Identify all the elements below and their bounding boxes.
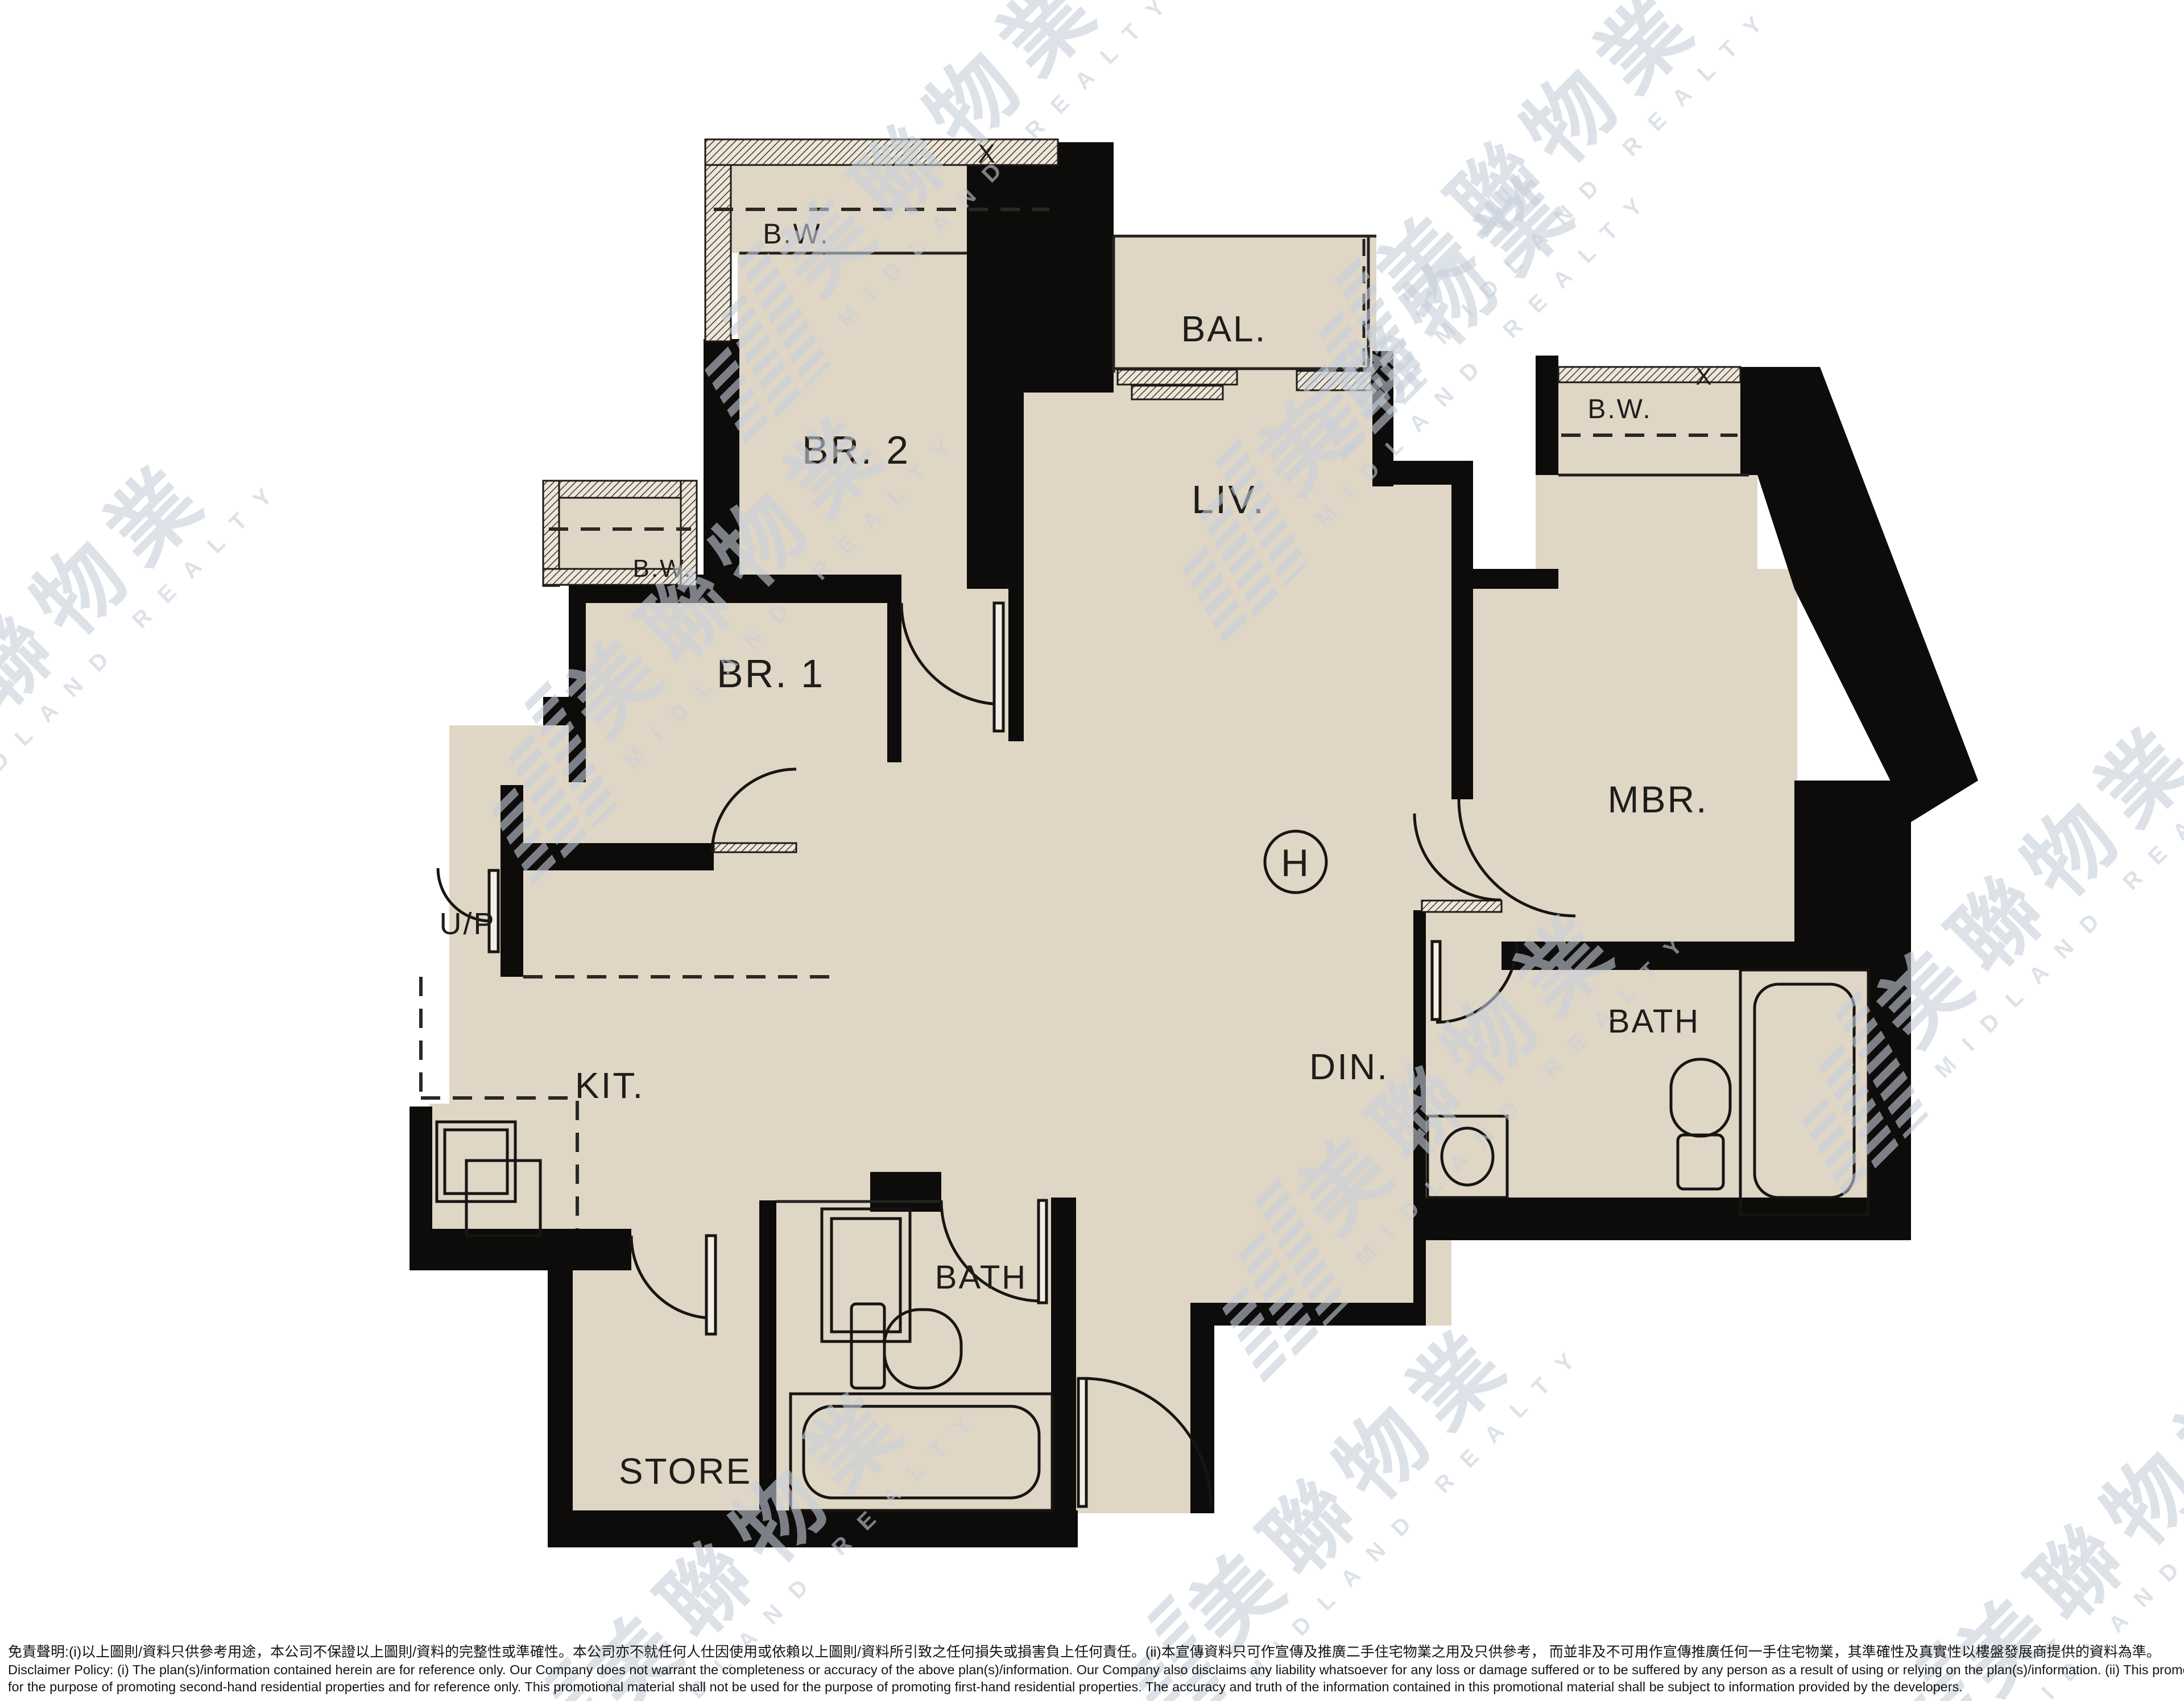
disclaimer: 免責聲明:(i)以上圖則/資料只供參考用途，本公司不保證以上圖則/資料的完整性或… — [8, 1643, 2178, 1695]
room-label-bw-left: B.W. — [633, 555, 693, 583]
door-leaf-entrance — [1078, 1378, 1086, 1506]
room-label-mbr: MBR. — [1608, 778, 1709, 820]
room-label-bw-right: B.W. — [1587, 394, 1652, 424]
wall — [1024, 142, 1114, 393]
wall — [543, 697, 586, 725]
floorplan-drawing: H X X B.W. BR. 2 BAL. LIV. B.W. MBR. B.W… — [0, 0, 2184, 1701]
room-label-br1: BR. 1 — [717, 651, 825, 696]
room-label-din: DIN. — [1309, 1046, 1389, 1087]
room-label-br2: BR. 2 — [802, 428, 910, 472]
wall — [1008, 369, 1024, 741]
bay-window-band — [705, 139, 1058, 165]
room-label-bath-master: BATH — [1608, 1003, 1700, 1040]
wall — [1868, 781, 1911, 1240]
window-mark-icon: X — [1695, 363, 1713, 390]
disclaimer-line-zh: 免責聲明:(i)以上圖則/資料只供參考用途，本公司不保證以上圖則/資料的完整性或… — [8, 1643, 2178, 1661]
door-leaf-br2 — [994, 603, 1003, 731]
room-label-liv: LIV. — [1192, 477, 1265, 522]
bay-window-band — [543, 481, 697, 498]
room-label-bw-top-left: B.W. — [763, 218, 830, 250]
wall — [1501, 942, 1871, 970]
wall — [1740, 367, 1757, 475]
floor-entrance — [1076, 1326, 1190, 1513]
wall — [1473, 569, 1558, 589]
sliding-door-panel — [1132, 386, 1223, 399]
room-label-kit: KIT. — [575, 1065, 644, 1106]
wall — [1211, 1303, 1425, 1326]
wall — [548, 1510, 1078, 1547]
room-label-up: U/P — [439, 907, 495, 941]
wall — [1190, 1303, 1214, 1513]
wall — [569, 585, 586, 782]
wall — [870, 1172, 941, 1212]
wall — [1413, 910, 1426, 1326]
door-leaf-bath-master — [1432, 942, 1440, 1019]
wall — [887, 589, 901, 762]
wall — [1536, 356, 1558, 475]
door-sill — [714, 843, 796, 852]
floor-vestibule — [796, 759, 1008, 890]
unit-marker-label: H — [1281, 841, 1310, 885]
disclaimer-line-en-2: for the purpose of promoting second-hand… — [8, 1678, 2178, 1695]
room-label-store: STORE — [619, 1451, 752, 1492]
sliding-door-panel — [1118, 370, 1237, 385]
room-label-bath-common: BATH — [935, 1259, 1027, 1296]
door-leaf-corridor — [706, 1236, 715, 1334]
floor-bal — [1114, 236, 1376, 374]
disclaimer-line-en-1: Disclaimer Policy: (i) The plan(s)/infor… — [8, 1661, 2178, 1678]
wall — [523, 843, 714, 870]
wall — [1425, 1198, 1911, 1240]
door-leaf-open — [1422, 901, 1501, 912]
wall — [759, 1200, 776, 1510]
wall — [548, 1270, 573, 1547]
wall — [704, 339, 739, 589]
door-leaf-bath-common — [1039, 1200, 1046, 1303]
floor-mbr — [1451, 569, 1797, 967]
wall — [409, 1107, 432, 1240]
window-mark-icon: X — [978, 139, 997, 168]
wall — [1451, 461, 1473, 799]
wall — [500, 785, 523, 977]
wall — [1372, 461, 1473, 485]
wall — [1051, 1198, 1076, 1539]
room-label-bal: BAL. — [1181, 308, 1267, 349]
bay-window-band — [705, 165, 731, 341]
floorplan-page: H X X B.W. BR. 2 BAL. LIV. B.W. MBR. B.W… — [0, 0, 2184, 1701]
sliding-door-panel — [1297, 371, 1372, 390]
